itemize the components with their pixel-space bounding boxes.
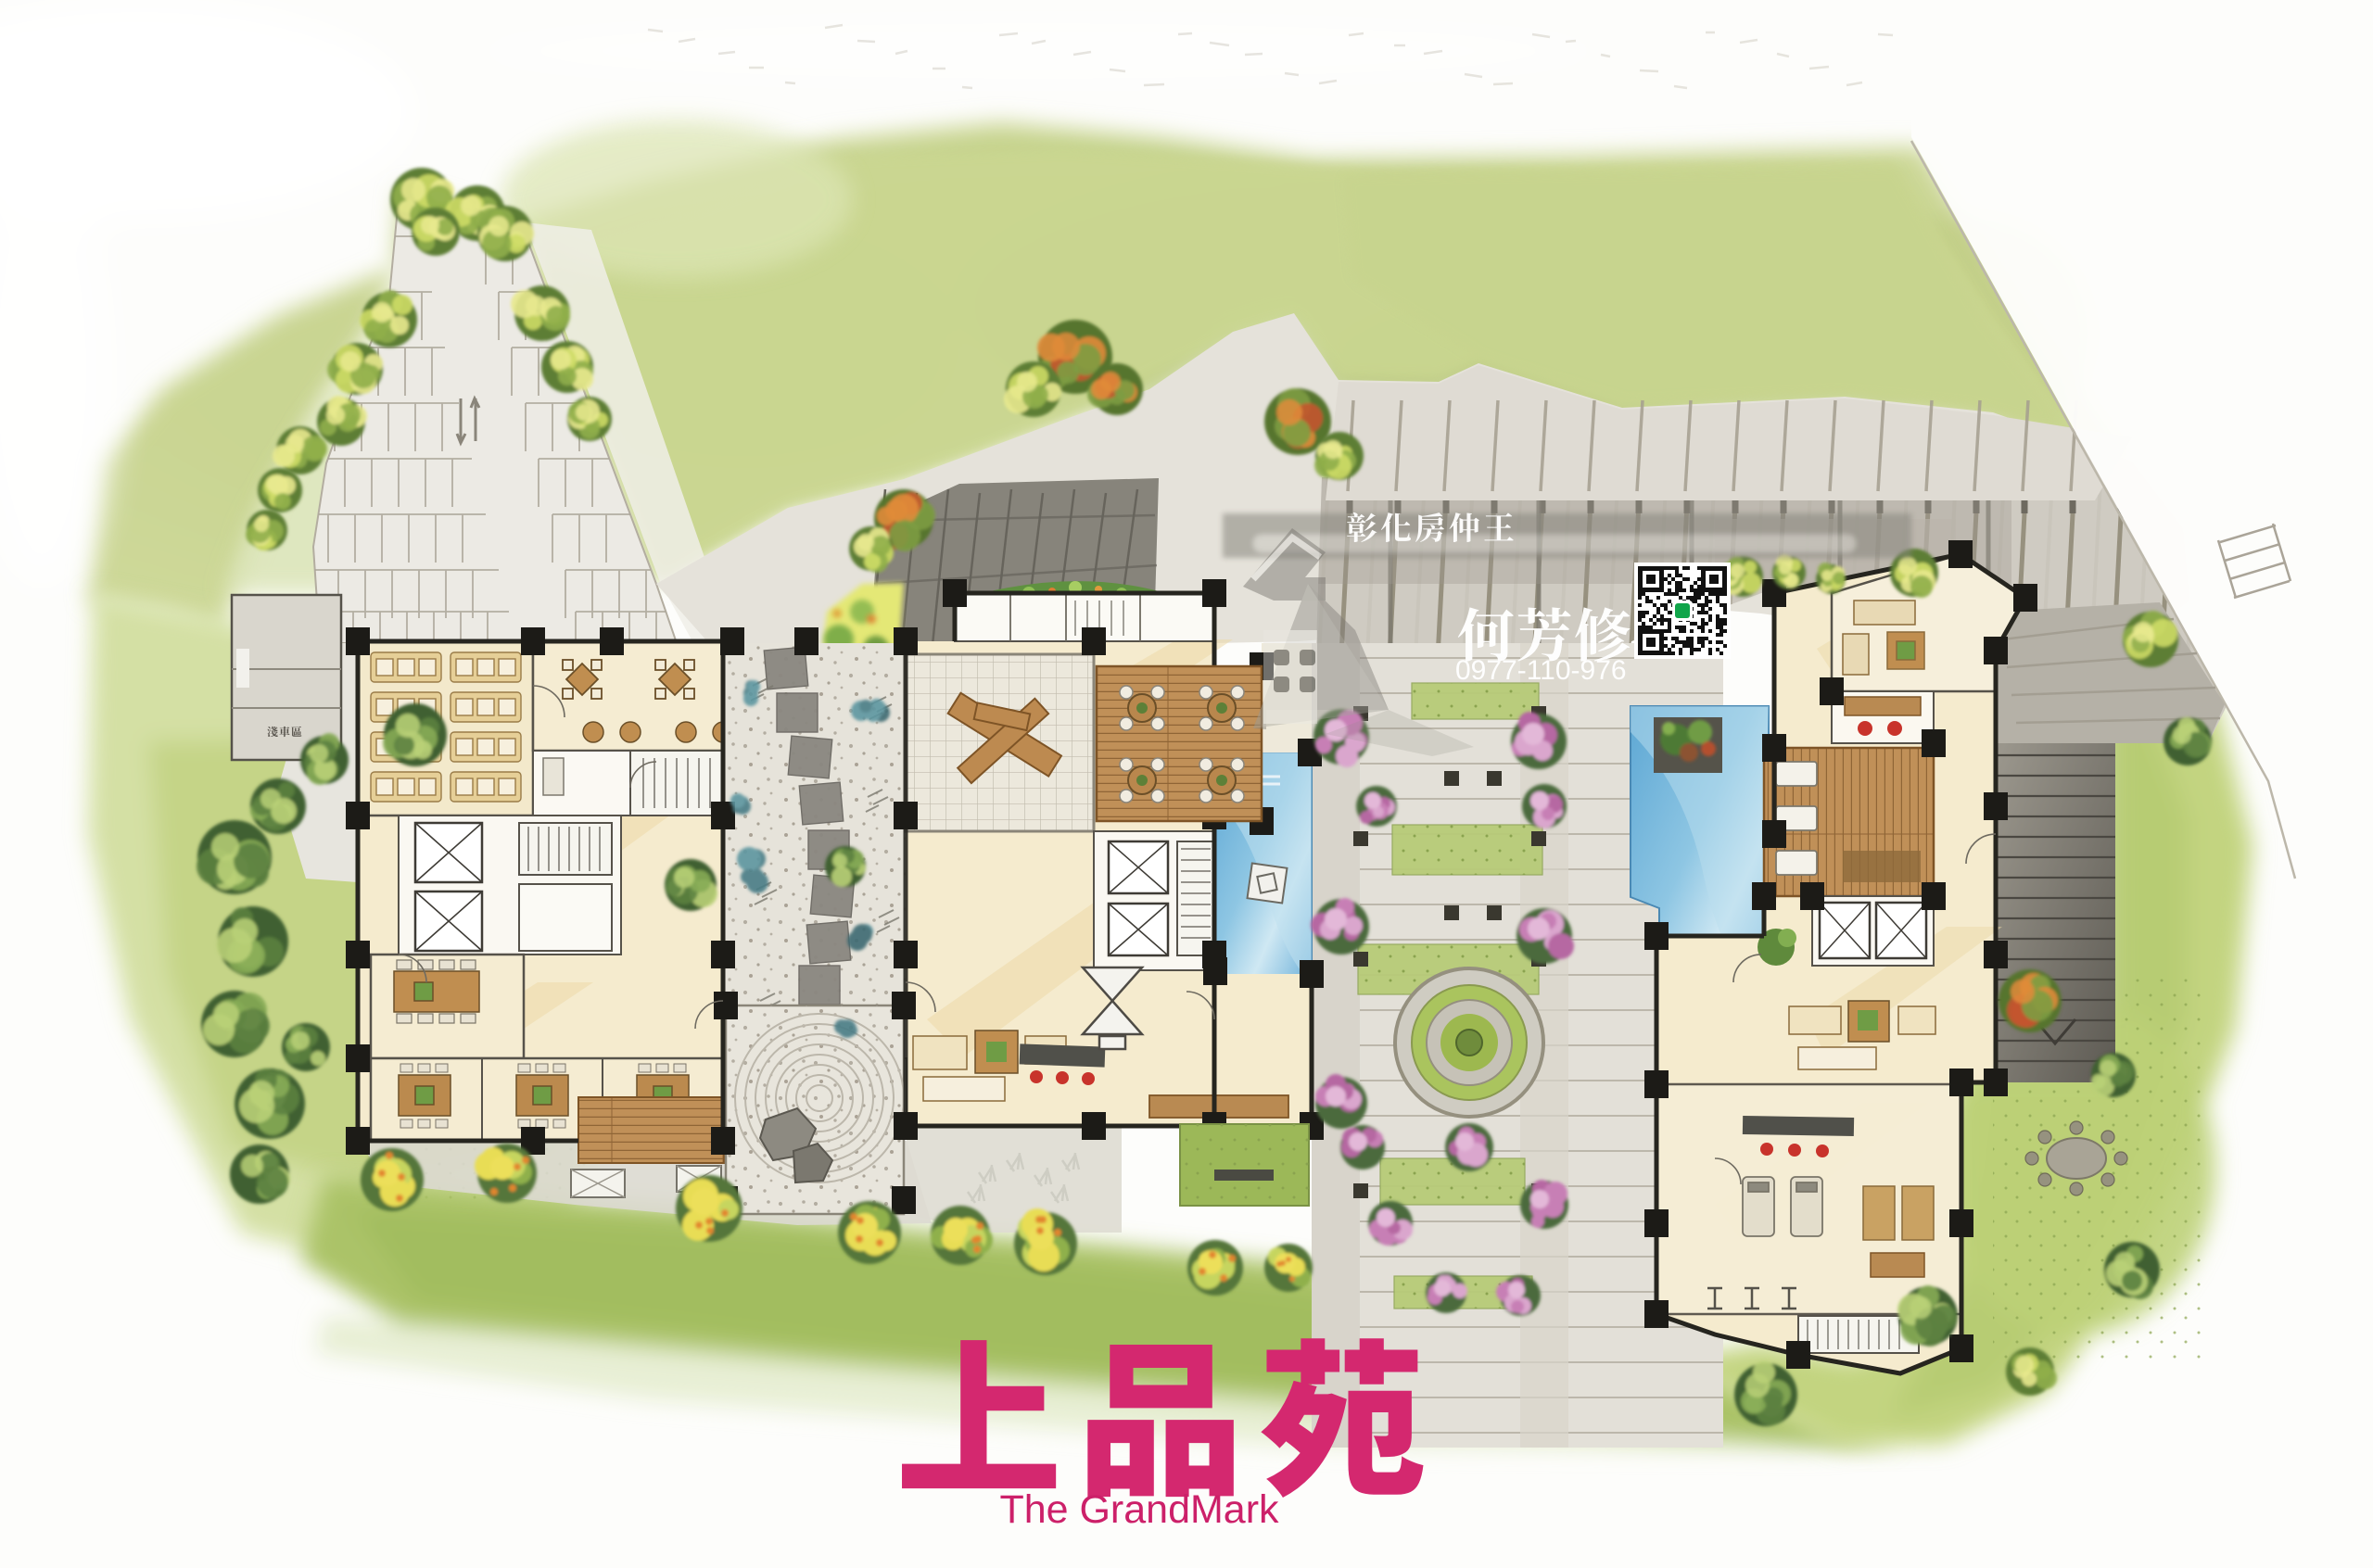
svg-text:The GrandMark: The GrandMark	[999, 1487, 1279, 1532]
svg-text:0977-110-976: 0977-110-976	[1455, 655, 1627, 686]
